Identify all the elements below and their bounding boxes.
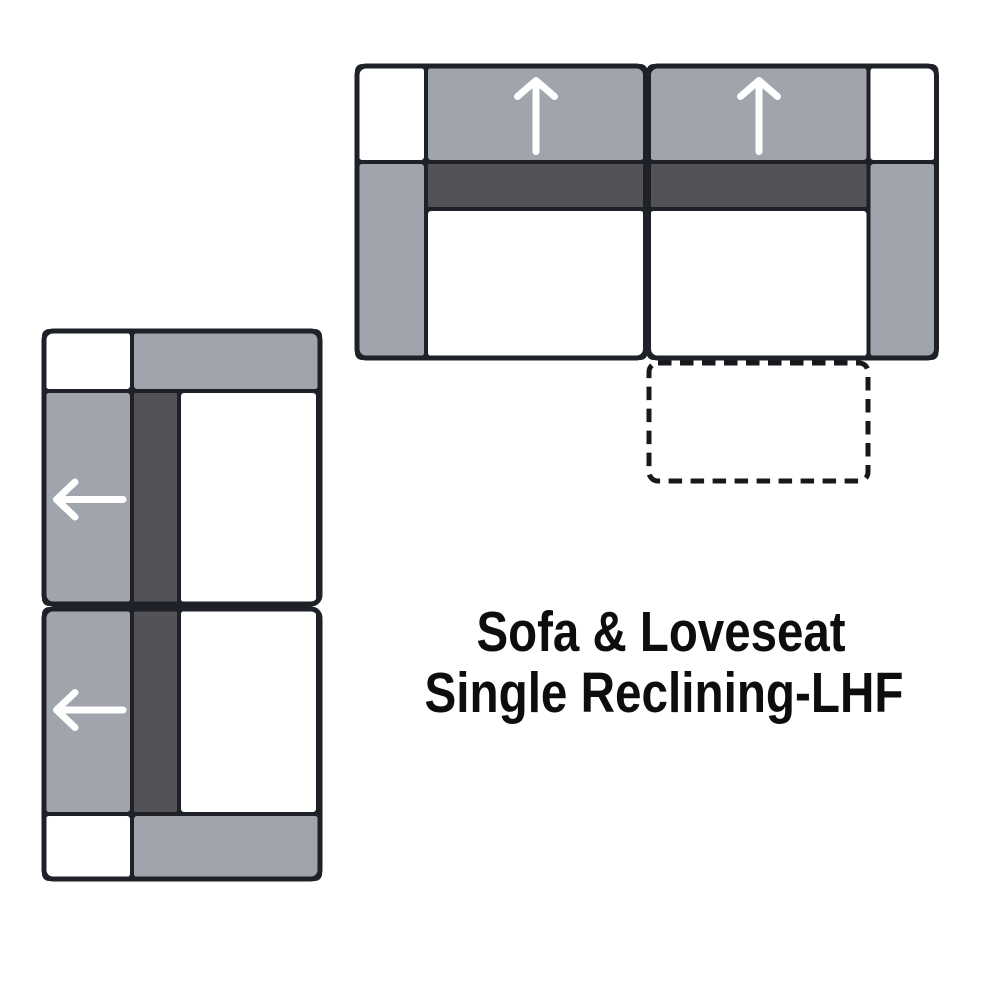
svg-text:Sofa & Loveseat: Sofa & Loveseat: [477, 600, 846, 664]
svg-text:Single Reclining-LHF: Single Reclining-LHF: [425, 661, 904, 725]
